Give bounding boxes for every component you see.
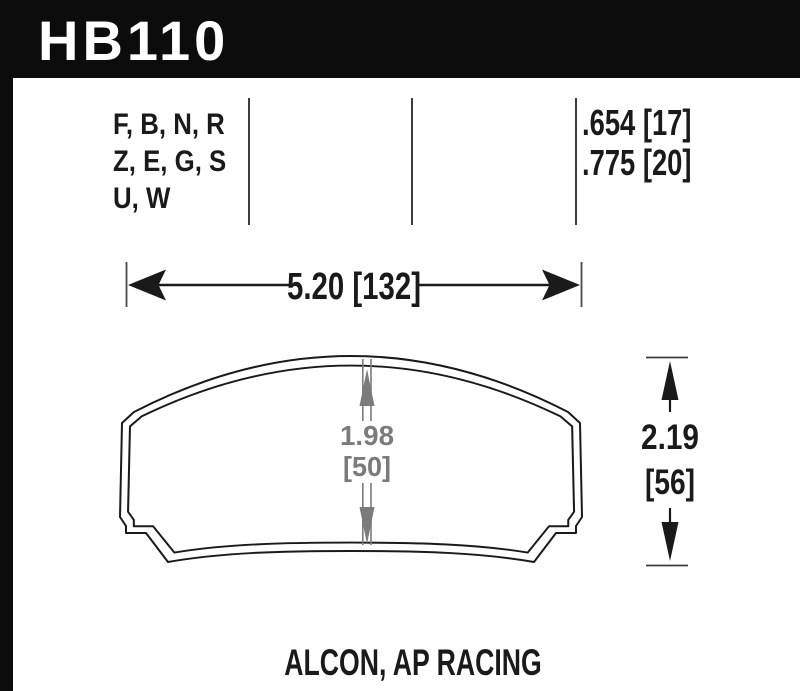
height-value: 2.19	[641, 418, 699, 457]
caliper-applications-label: ALCON, AP RACING	[284, 643, 542, 683]
technical-drawing: 5.20 [132] 1.98 [50] 2.19 [56]	[0, 0, 800, 691]
height-dimension: 2.19 [56]	[641, 358, 699, 566]
up-arrow-icon	[662, 361, 679, 400]
width-dim-label: 5.20 [132]	[287, 266, 421, 308]
caliper-applications: ALCON, AP RACING	[413, 643, 771, 683]
brake-pad-spec-sheet: HB110 F, B, N, R Z, E, G, S U, W .654 [1…	[0, 0, 800, 691]
center-height-mm: [50]	[343, 451, 391, 482]
height-mm: [56]	[645, 463, 695, 502]
width-dimension: 5.20 [132]	[127, 262, 582, 308]
center-height-value: 1.98	[340, 420, 394, 451]
down-arrow-icon	[662, 522, 679, 561]
